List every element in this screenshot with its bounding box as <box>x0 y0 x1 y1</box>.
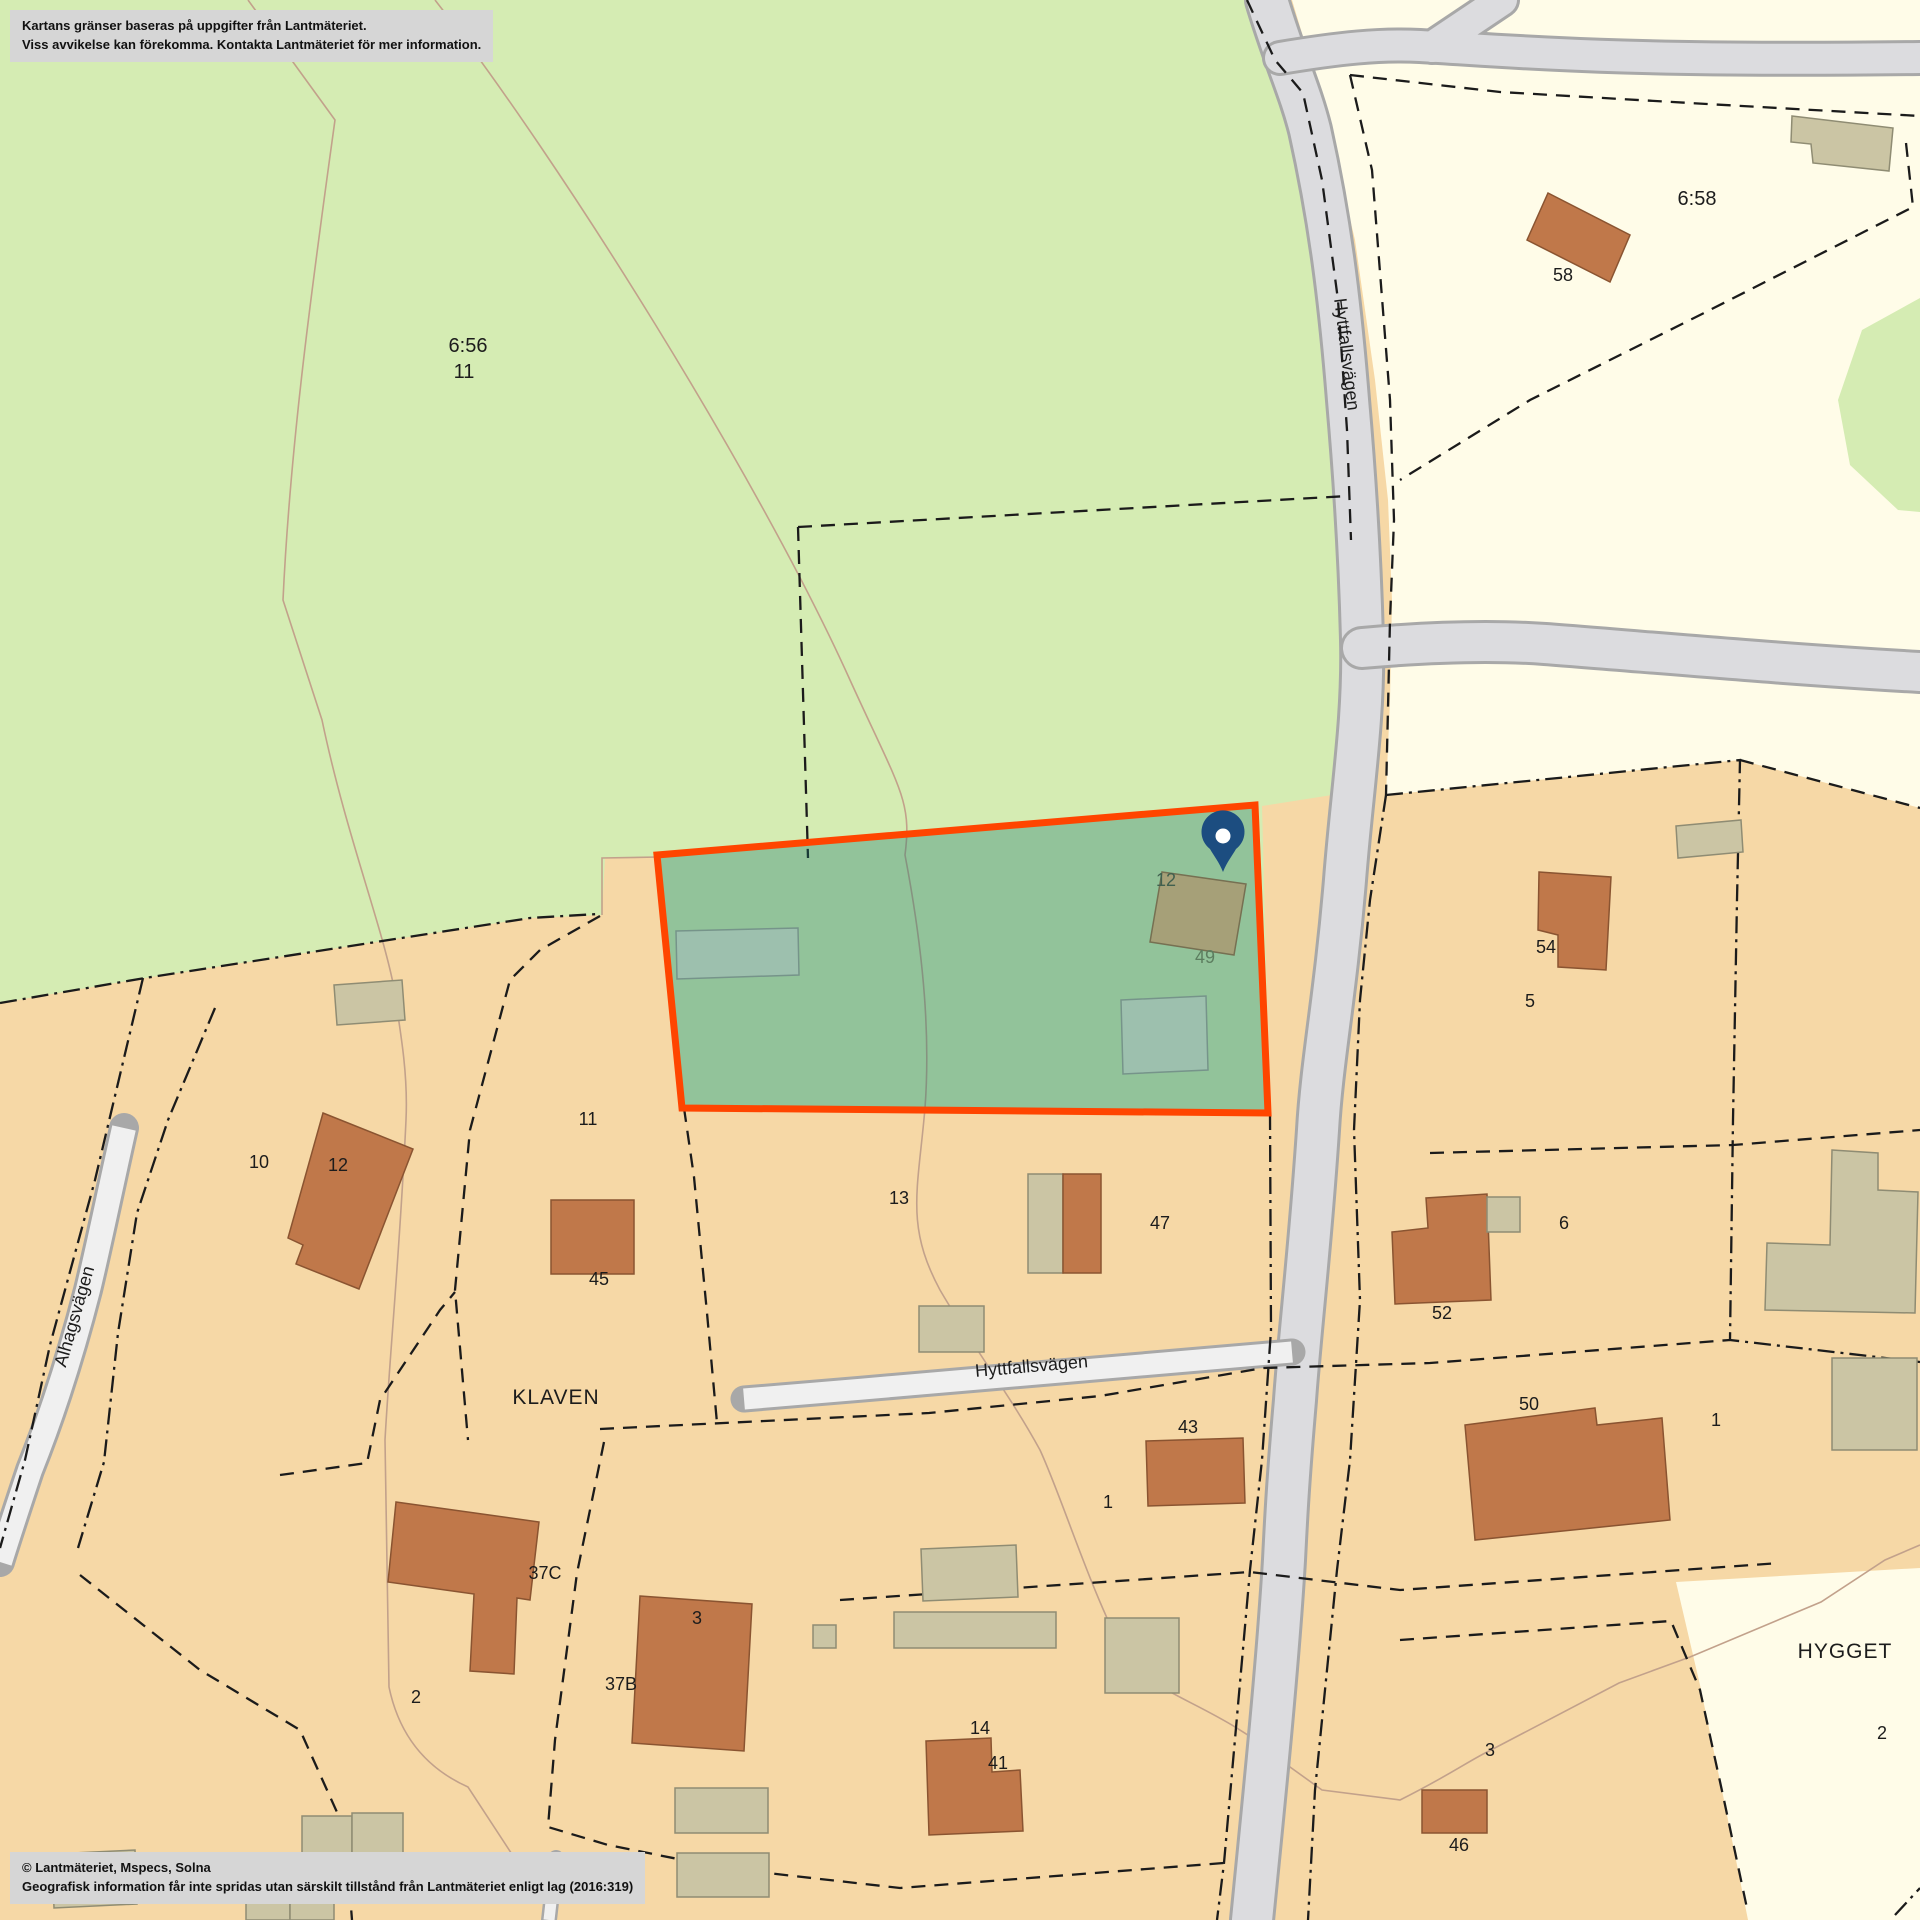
building-outbuilding-se <box>1832 1358 1917 1450</box>
map-label-house-37b: 37B <box>605 1674 637 1694</box>
building-outbuilding-long <box>894 1612 1056 1648</box>
map-label-house-52: 52 <box>1432 1303 1452 1323</box>
building-52-annex <box>1487 1197 1520 1232</box>
building-50 <box>1465 1408 1670 1540</box>
map-label-house-3w: 3 <box>692 1608 702 1628</box>
building-outbuilding-c2 <box>1105 1618 1179 1693</box>
map-label-parcel-5: 5 <box>1525 991 1535 1011</box>
disclaimer-line2: Viss avvikelse kan förekomma. Kontakta L… <box>22 36 481 55</box>
map-label-parcel-11: 11 <box>579 1109 598 1129</box>
map-label-area-hygget: HYGGET <box>1798 1640 1893 1663</box>
map-label-house-10: 10 <box>249 1152 269 1172</box>
map-label-parcel-1e: 1 <box>1711 1410 1721 1430</box>
copyright-line2: Geografisk information får inte spridas … <box>22 1878 633 1897</box>
building-46 <box>1422 1790 1487 1833</box>
building-outbuilding-parcel-west <box>676 928 799 979</box>
building-outbuilding-parcel-south <box>1121 996 1208 1074</box>
map-label-parcel-3e: 3 <box>1485 1740 1495 1760</box>
map-label-house-12-parcel: 12 <box>1156 870 1176 890</box>
building-45 <box>551 1200 634 1274</box>
map-label-parcel-2w: 2 <box>411 1687 421 1707</box>
building-outbuilding-c3 <box>675 1788 768 1833</box>
map-label-house-37c: 37C <box>528 1563 561 1583</box>
building-47-annex <box>1028 1174 1063 1273</box>
building-outbuilding-13 <box>919 1306 984 1352</box>
building-43 <box>1146 1438 1245 1506</box>
building-outbuilding-54n <box>1676 820 1743 858</box>
map-label-prop-6-56b: 11 <box>454 361 475 383</box>
copyright-line1: © Lantmäteriet, Mspecs, Solna <box>22 1859 633 1878</box>
map-label-house-45: 45 <box>589 1269 609 1289</box>
map-label-prop-6-58: 6:58 <box>1678 188 1717 210</box>
map-label-parcel-13: 13 <box>889 1188 909 1208</box>
cadastral-map[interactable]: 6:56116:5858Hyttfallsvägen12491012114513… <box>0 0 1920 1920</box>
map-label-house-54: 54 <box>1536 937 1556 957</box>
disclaimer-line1: Kartans gränser baseras på uppgifter frå… <box>22 17 481 36</box>
map-label-house-12w: 12 <box>328 1155 348 1175</box>
map-disclaimer: Kartans gränser baseras på uppgifter frå… <box>10 10 493 62</box>
building-47 <box>1063 1174 1101 1273</box>
map-label-house-41: 41 <box>988 1753 1008 1773</box>
building-outbuilding-c4 <box>677 1853 769 1897</box>
building-outbuilding-klaven <box>334 980 405 1025</box>
map-label-house-50: 50 <box>1519 1394 1539 1414</box>
map-copyright: © Lantmäteriet, Mspecs, Solna Geografisk… <box>10 1852 645 1904</box>
map-label-prop-6-56: 6:56 <box>449 335 488 357</box>
map-label-house-49-parcel: 49 <box>1195 947 1215 967</box>
map-label-house-47: 47 <box>1150 1213 1170 1233</box>
map-label-house-46: 46 <box>1449 1835 1469 1855</box>
map-label-parcel-6: 6 <box>1559 1213 1569 1233</box>
map-canvas[interactable]: 6:56116:5858Hyttfallsvägen12491012114513… <box>0 0 1920 1920</box>
map-label-parcel-2e: 2 <box>1877 1723 1887 1743</box>
map-label-area-klaven: KLAVEN <box>512 1386 599 1409</box>
building-outbuilding-small <box>813 1625 836 1648</box>
map-label-parcel-1w: 1 <box>1103 1492 1113 1512</box>
map-label-house-14: 14 <box>970 1718 990 1738</box>
building-outbuilding-c1 <box>921 1545 1018 1601</box>
map-label-house-58: 58 <box>1553 265 1573 285</box>
map-label-house-43: 43 <box>1178 1417 1198 1437</box>
